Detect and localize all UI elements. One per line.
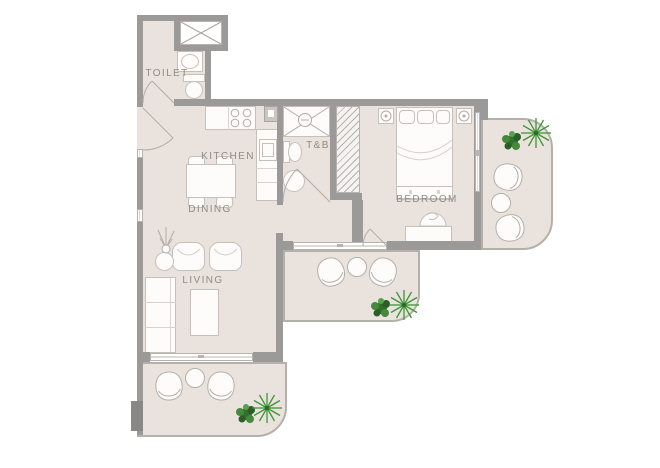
- duct-box-inner: [268, 110, 274, 117]
- wall-segment: [253, 352, 283, 362]
- sofa-front-line: [170, 278, 171, 352]
- wall-segment: [481, 106, 488, 120]
- wall-segment: [276, 241, 293, 250]
- sofa-cushion-line: [145, 327, 176, 328]
- balcony-right-floor: [481, 118, 553, 250]
- wall-segment: [330, 106, 336, 200]
- floor-plan-canvas: TOILET KITCHEN T&B DINING BEDROOM LIVING: [0, 0, 660, 468]
- wall-segment: [174, 45, 228, 51]
- wall-segment: [352, 200, 363, 243]
- coffee-table: [190, 289, 219, 336]
- kitchen-counter-divider: [228, 106, 229, 130]
- wardrobe: [336, 106, 360, 193]
- shaft-box: [180, 21, 222, 45]
- kitchen-label: KITCHEN: [201, 151, 255, 162]
- window-tick: [337, 244, 343, 247]
- window: [137, 149, 143, 158]
- living-armchair: [172, 242, 205, 271]
- sofa: [145, 277, 176, 353]
- kitchen-counter-top: [205, 106, 256, 130]
- bed-pillow: [436, 110, 450, 124]
- wall-segment: [205, 99, 488, 106]
- wall-segment: [137, 15, 143, 435]
- bed-pillow: [399, 110, 415, 124]
- living-label: LIVING: [182, 275, 223, 286]
- dining-label: DINING: [188, 204, 231, 215]
- window: [137, 209, 143, 222]
- window-tick: [198, 355, 204, 358]
- window-tick: [476, 150, 479, 156]
- dresser: [405, 226, 452, 242]
- toilet-label: TOILET: [145, 68, 188, 79]
- wall-segment: [276, 233, 283, 354]
- wall-segment: [131, 401, 143, 431]
- wall-segment: [330, 193, 362, 200]
- shower-tray: [283, 106, 330, 137]
- toilet-room-sink-basin: [181, 54, 199, 69]
- tb-wc-bowl: [288, 142, 302, 162]
- tb-label: T&B: [306, 140, 330, 151]
- nightstand: [456, 108, 472, 124]
- toilet-room-wc-bowl: [185, 81, 203, 99]
- wall-segment: [387, 241, 481, 250]
- entry-door-opening: [137, 107, 143, 150]
- bedroom-label: BEDROOM: [396, 194, 457, 205]
- sofa-cushion-line: [145, 302, 176, 303]
- bed-pillow: [417, 110, 434, 124]
- kitchen-sink-basin: [262, 143, 274, 157]
- wall-segment: [137, 15, 228, 21]
- dining-table: [186, 164, 236, 198]
- balcony-bottom-floor: [137, 362, 287, 437]
- tb-sink: [283, 170, 305, 192]
- living-armchair: [209, 242, 242, 271]
- wall-segment: [137, 352, 150, 362]
- living-side-table: [155, 252, 174, 271]
- wall-segment: [205, 51, 211, 106]
- balcony-middle-floor: [283, 250, 420, 322]
- nightstand: [378, 108, 394, 124]
